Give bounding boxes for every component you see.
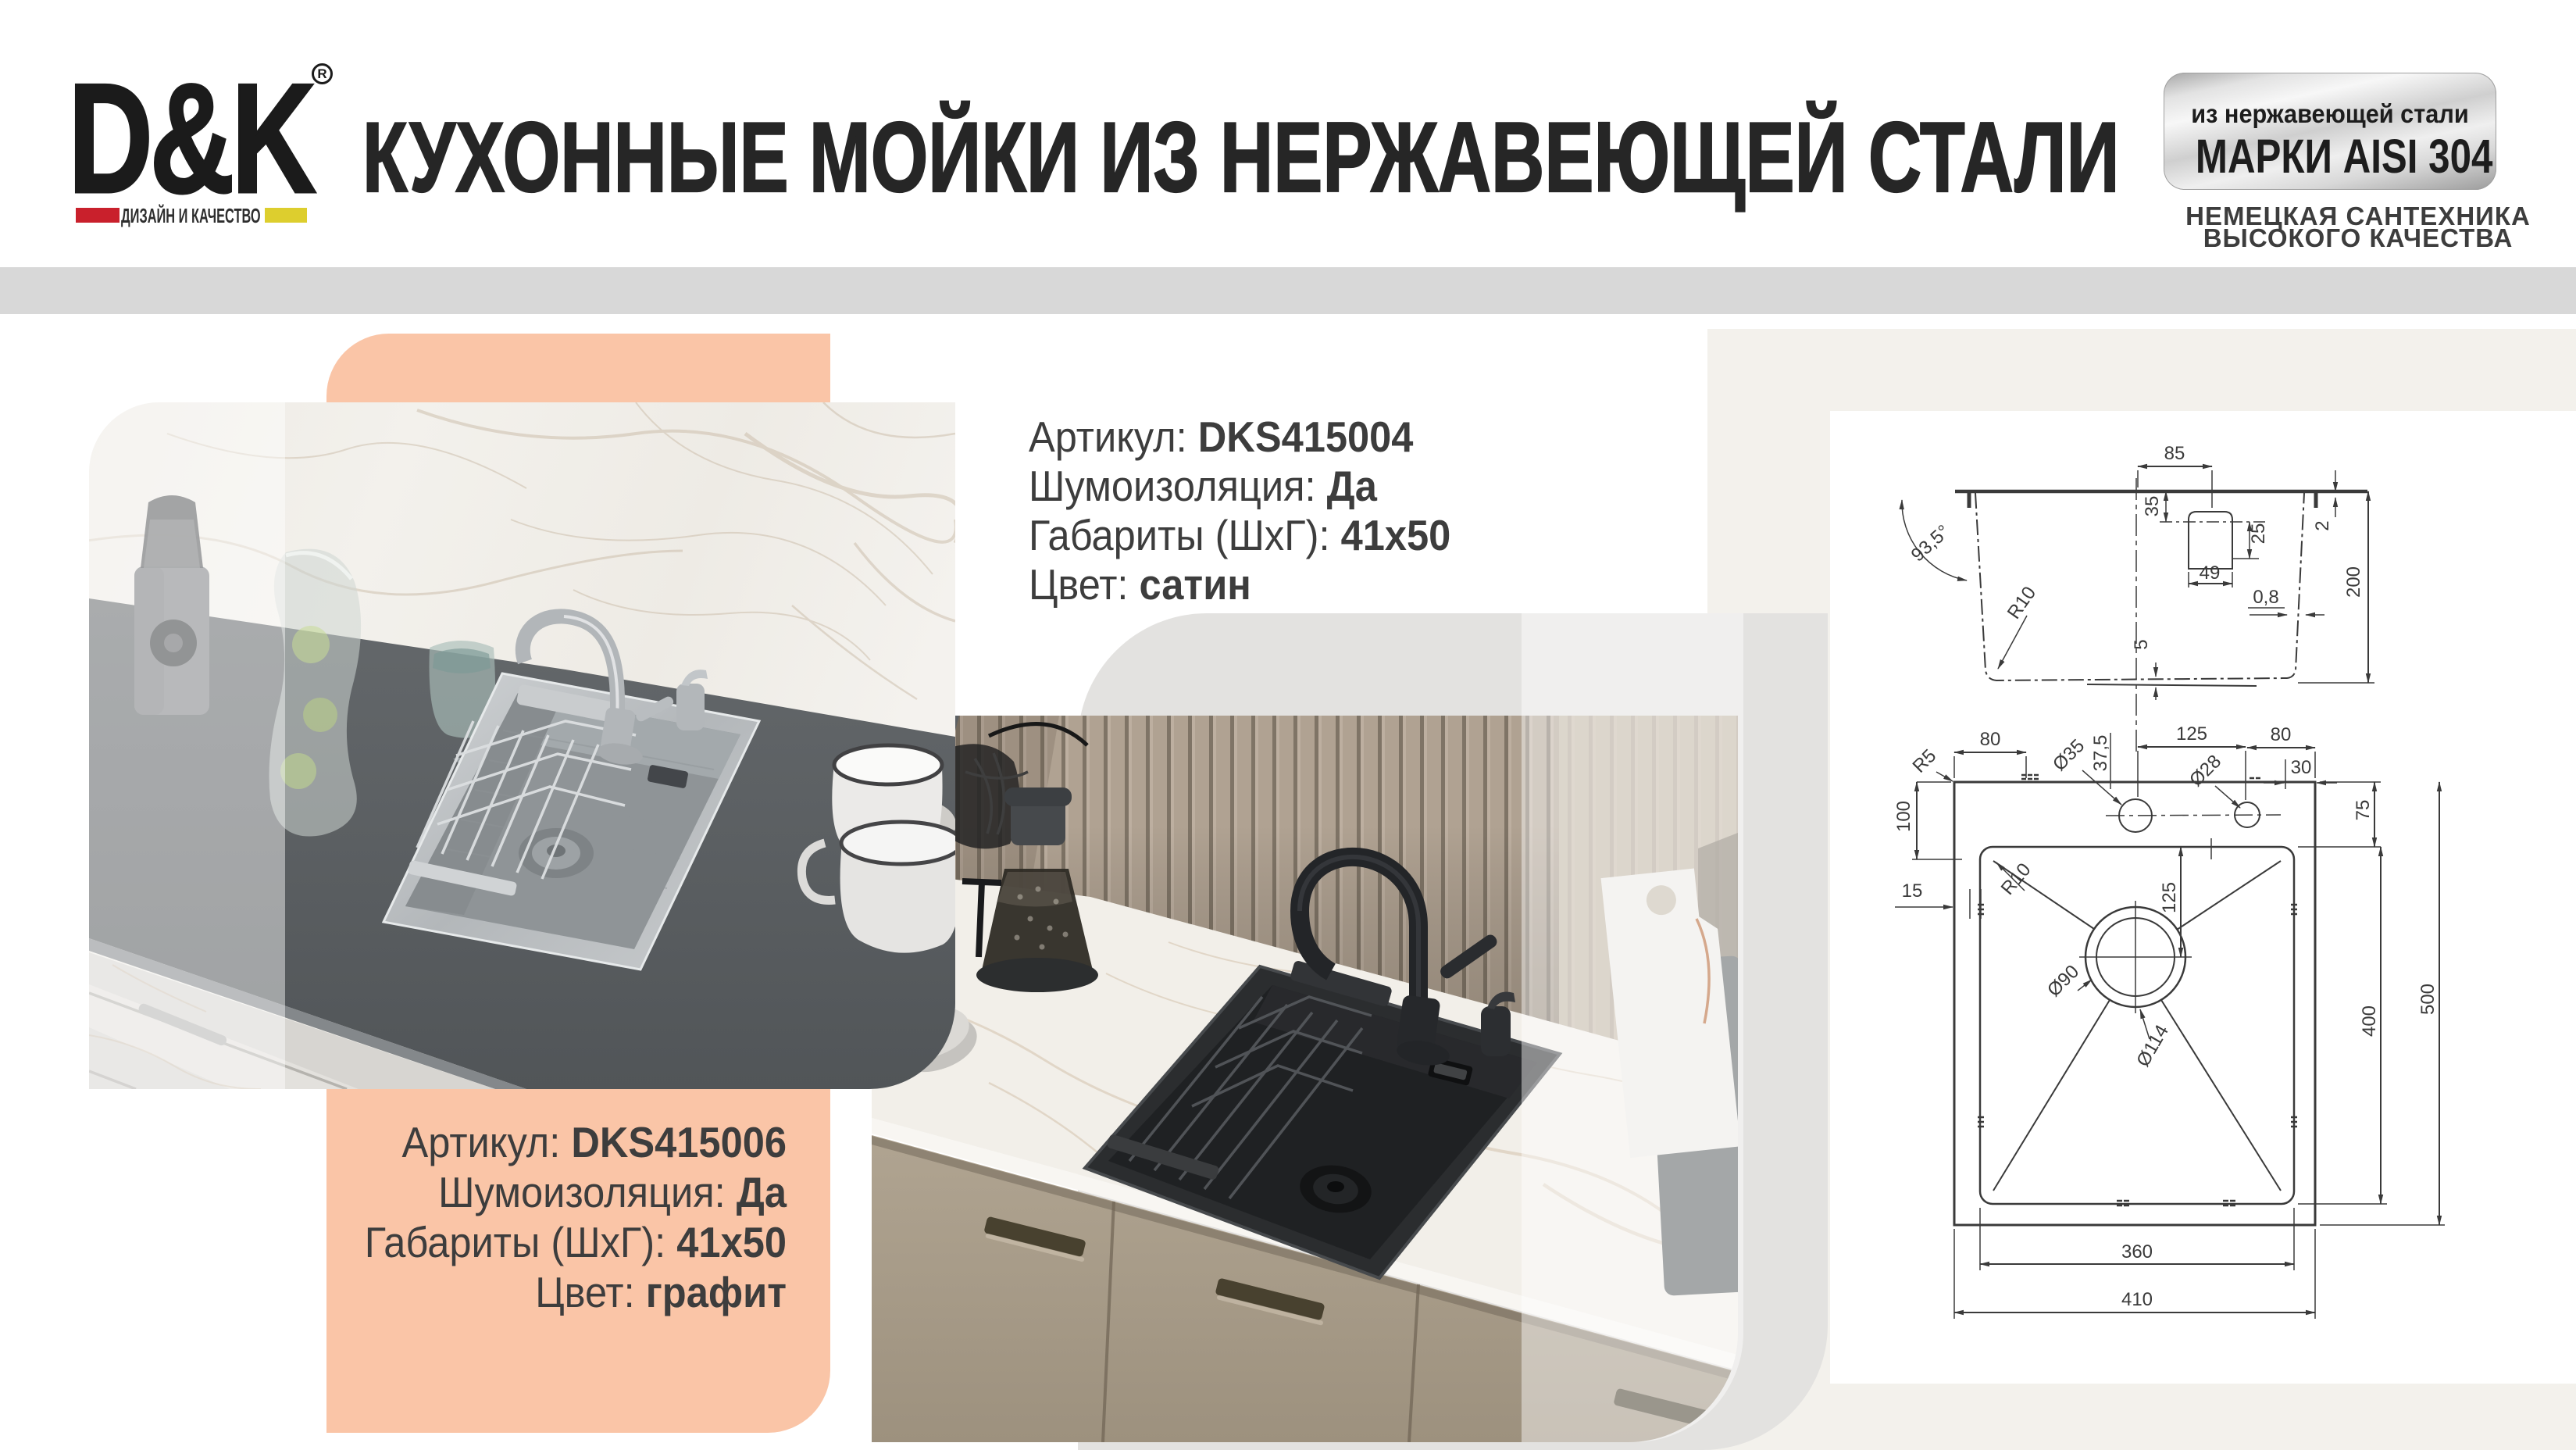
svg-text:410: 410: [2121, 1289, 2153, 1310]
svg-text:500: 500: [2417, 984, 2439, 1015]
svg-text:37,5: 37,5: [2090, 735, 2111, 772]
svg-text:200: 200: [2343, 566, 2364, 598]
svg-text:400: 400: [2359, 1005, 2380, 1037]
svg-text:Ø28: Ø28: [2185, 751, 2225, 791]
svg-text:360: 360: [2121, 1241, 2153, 1262]
svg-text:80: 80: [2271, 724, 2292, 745]
svg-text:25: 25: [2248, 523, 2269, 545]
svg-text:Ø35: Ø35: [2049, 735, 2089, 775]
svg-text:15: 15: [1902, 880, 1923, 902]
svg-text:Ø114: Ø114: [2132, 1021, 2173, 1070]
svg-text:30: 30: [2291, 757, 2312, 778]
svg-text:5: 5: [2131, 639, 2152, 649]
svg-text:75: 75: [2353, 800, 2374, 821]
svg-text:R10: R10: [1997, 859, 2035, 899]
svg-text:80: 80: [1980, 729, 2001, 750]
svg-text:85: 85: [2164, 443, 2185, 464]
svg-text:0,8: 0,8: [2253, 587, 2278, 608]
svg-text:49: 49: [2200, 562, 2221, 584]
svg-text:100: 100: [1893, 801, 1914, 832]
svg-text:R5: R5: [1908, 745, 1940, 777]
svg-text:2: 2: [2312, 520, 2333, 530]
svg-text:R10: R10: [2003, 583, 2040, 623]
svg-text:Ø90: Ø90: [2043, 961, 2083, 1001]
svg-text:125: 125: [2159, 882, 2180, 913]
svg-text:35: 35: [2142, 496, 2163, 517]
svg-text:93,5°: 93,5°: [1907, 521, 1954, 566]
svg-text:125: 125: [2176, 723, 2207, 745]
